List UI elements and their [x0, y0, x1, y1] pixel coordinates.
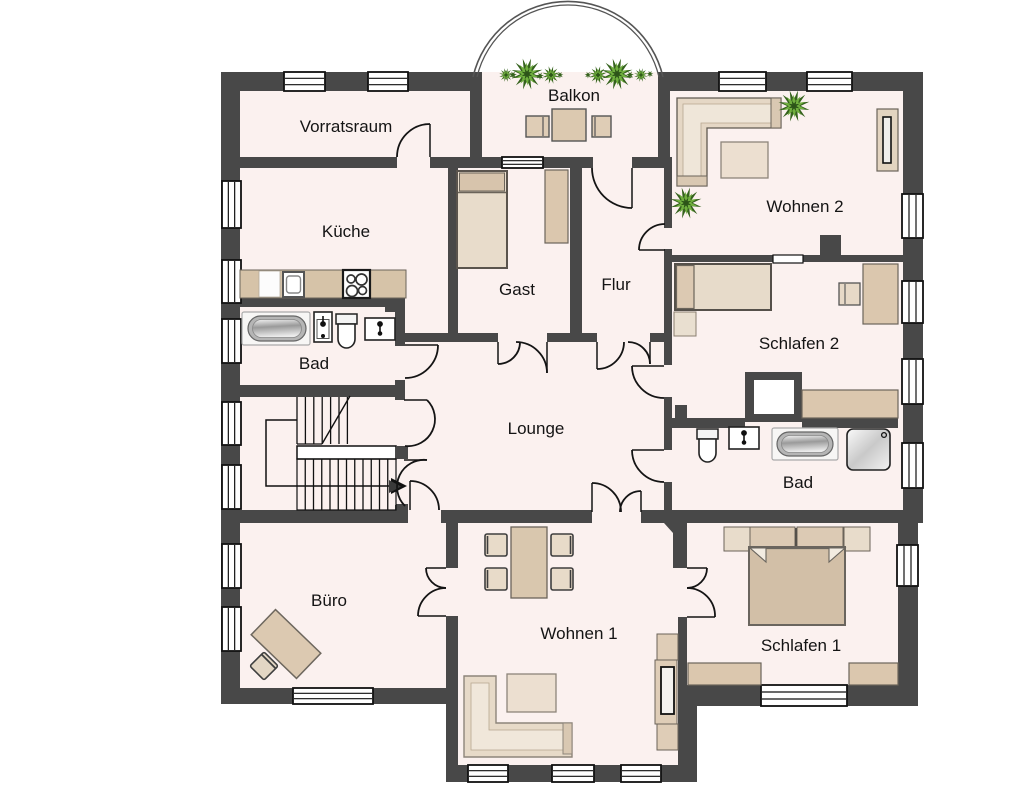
svg-text:Wohnen 2: Wohnen 2 — [766, 197, 843, 216]
svg-text:Flur: Flur — [601, 275, 631, 294]
svg-text:Gast: Gast — [499, 280, 535, 299]
svg-text:Schlafen 1: Schlafen 1 — [761, 636, 841, 655]
svg-text:Büro: Büro — [311, 591, 347, 610]
svg-text:Schlafen 2: Schlafen 2 — [759, 334, 839, 353]
svg-text:Vorratsraum: Vorratsraum — [300, 117, 393, 136]
svg-text:Balkon: Balkon — [548, 86, 600, 105]
svg-text:Bad: Bad — [299, 354, 329, 373]
svg-text:Lounge: Lounge — [508, 419, 565, 438]
svg-text:Wohnen 1: Wohnen 1 — [540, 624, 617, 643]
svg-text:Bad: Bad — [783, 473, 813, 492]
svg-text:Küche: Küche — [322, 222, 370, 241]
